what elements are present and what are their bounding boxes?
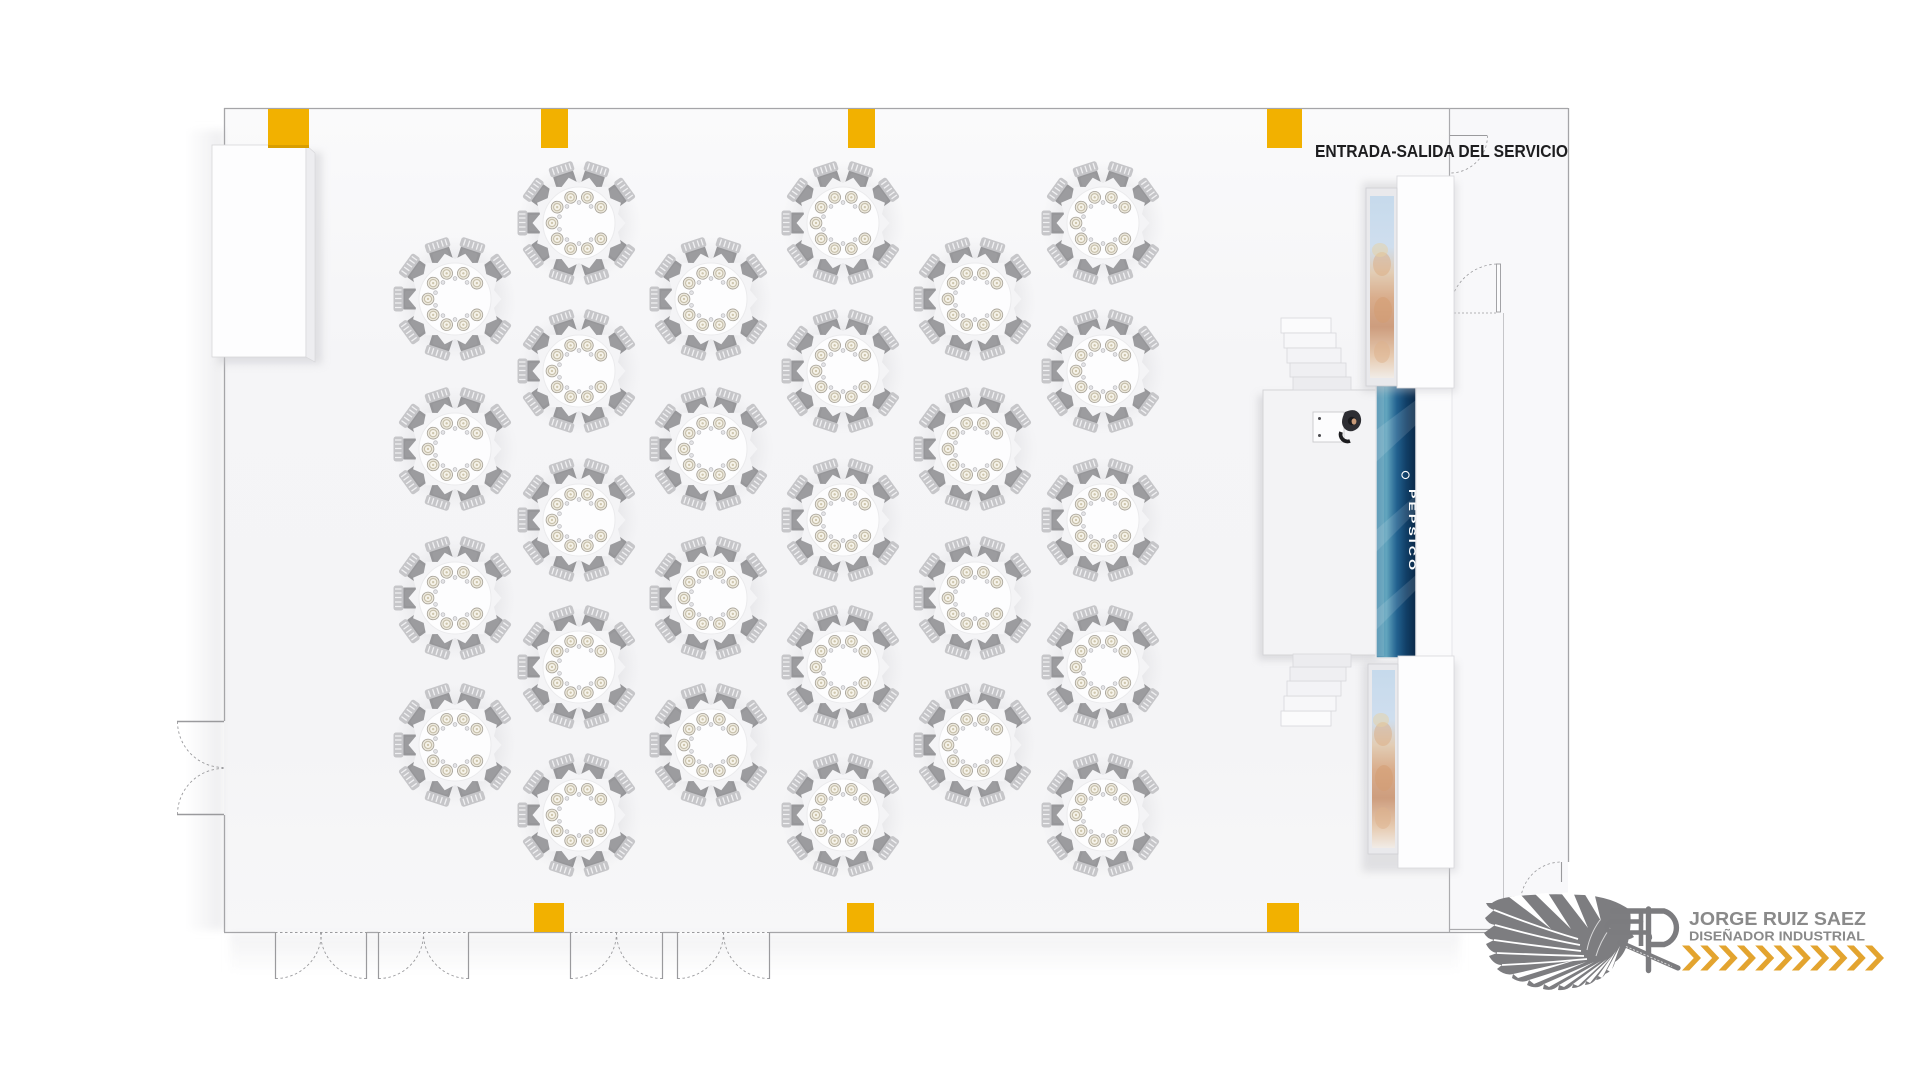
svg-text:JORGE RUIZ SAEZ: JORGE RUIZ SAEZ [1689, 908, 1866, 929]
svg-text:PEPSICO: PEPSICO [1406, 489, 1417, 573]
svg-text:DISEÑADOR INDUSTRIAL: DISEÑADOR INDUSTRIAL [1689, 929, 1865, 944]
svg-text:ENTRADA-SALIDA DEL SERVICIO: ENTRADA-SALIDA DEL SERVICIO [1315, 141, 1568, 161]
